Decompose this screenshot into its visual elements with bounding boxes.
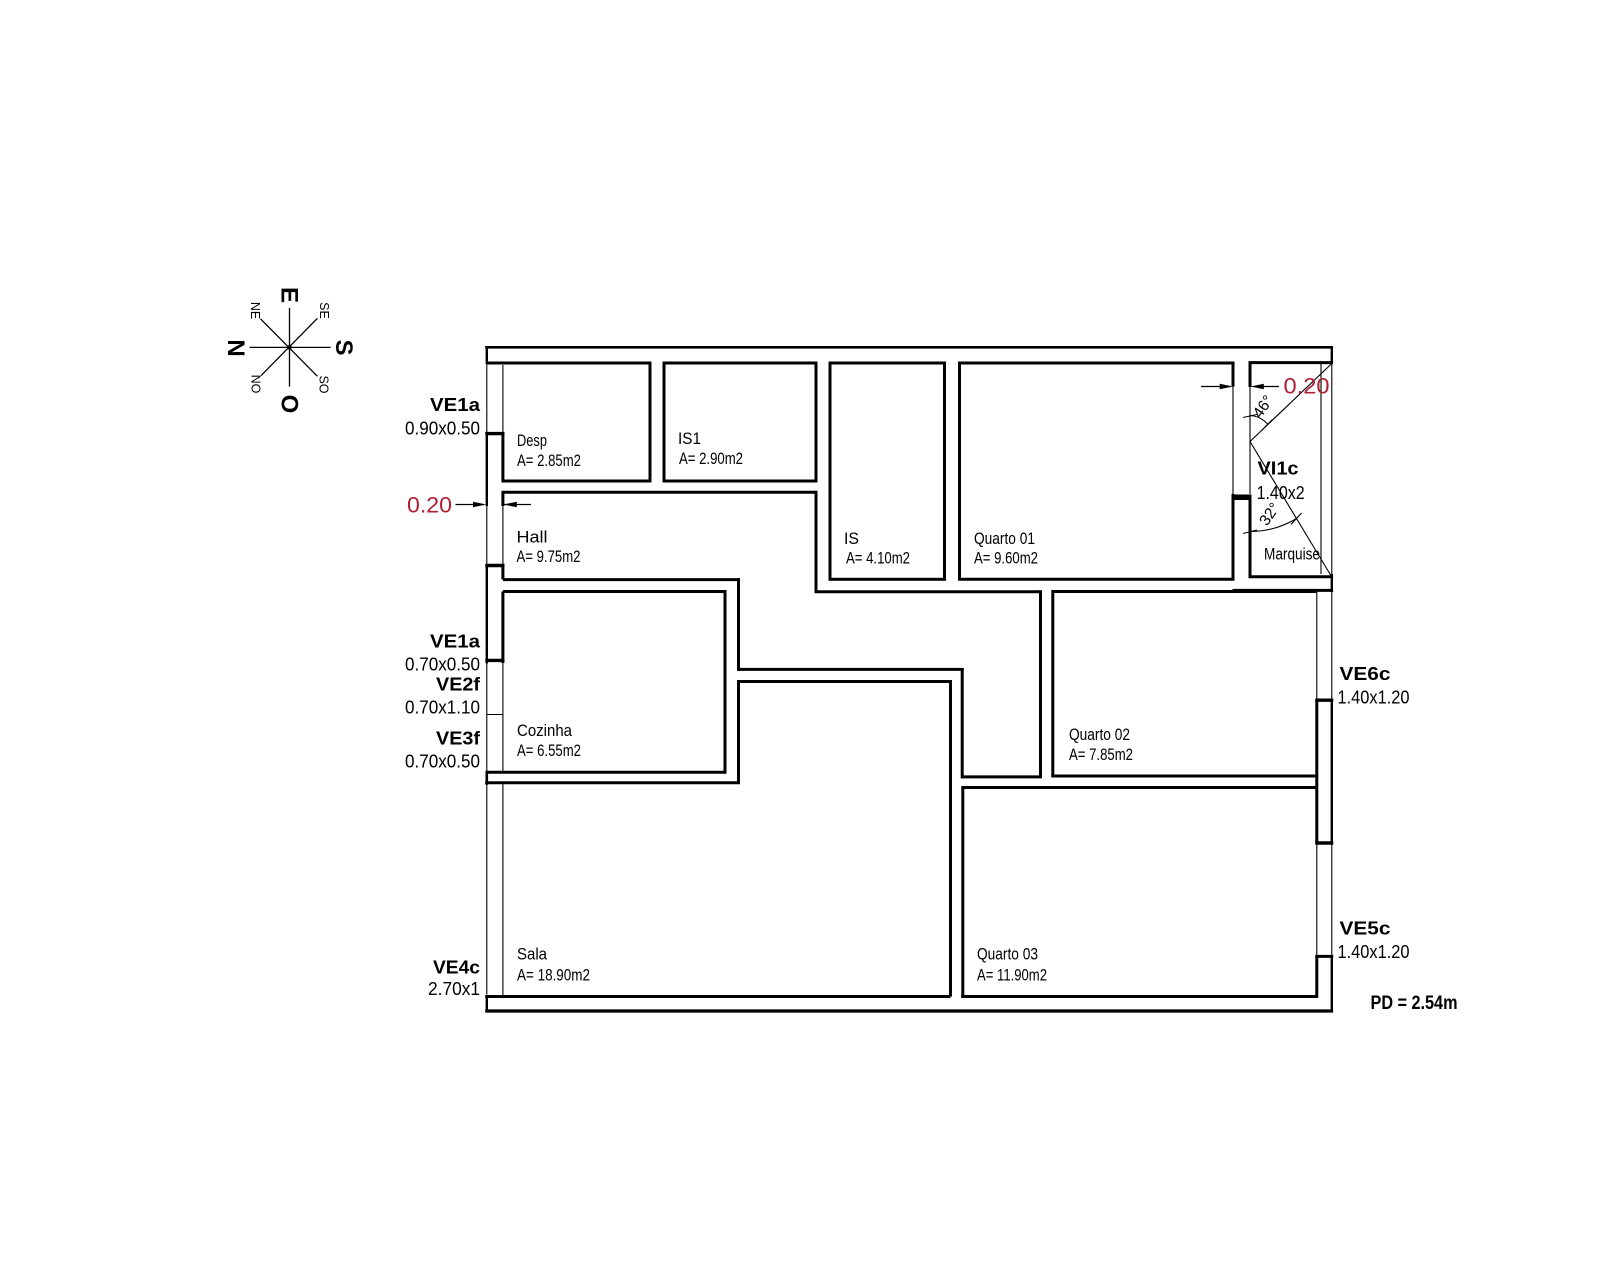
svg-text:Cozinha: Cozinha [517, 722, 573, 740]
svg-text:VE5c: VE5c [1340, 918, 1391, 939]
svg-text:O: O [276, 395, 303, 414]
svg-text:0.70x0.50: 0.70x0.50 [405, 655, 480, 675]
svg-text:A= 9.75m2: A= 9.75m2 [517, 548, 581, 566]
svg-text:IS1: IS1 [678, 430, 701, 448]
svg-text:1.40x1.20: 1.40x1.20 [1338, 688, 1410, 708]
svg-text:E: E [276, 287, 303, 303]
svg-text:N: N [222, 339, 249, 356]
svg-text:0.20: 0.20 [1284, 374, 1330, 399]
svg-text:PD = 2.54m: PD = 2.54m [1371, 992, 1458, 1014]
svg-text:NO: NO [249, 375, 263, 394]
svg-text:VE1a: VE1a [430, 631, 481, 652]
svg-text:A= 11.90m2: A= 11.90m2 [977, 967, 1047, 985]
svg-text:IS: IS [844, 530, 859, 548]
svg-text:VE1a: VE1a [430, 394, 481, 415]
svg-text:Sala: Sala [517, 946, 548, 964]
svg-text:VE2f: VE2f [436, 674, 481, 695]
svg-text:SE: SE [317, 302, 331, 319]
svg-text:VI1c: VI1c [1258, 458, 1299, 479]
svg-text:0.70x0.50: 0.70x0.50 [405, 752, 480, 772]
svg-text:NE: NE [248, 302, 262, 319]
svg-text:VE6c: VE6c [1340, 663, 1391, 684]
svg-text:A= 7.85m2: A= 7.85m2 [1069, 746, 1133, 764]
svg-text:0.20: 0.20 [407, 493, 452, 518]
svg-text:A= 6.55m2: A= 6.55m2 [517, 742, 581, 760]
svg-text:A= 9.60m2: A= 9.60m2 [974, 550, 1038, 568]
svg-text:Quarto 01: Quarto 01 [974, 530, 1035, 548]
svg-text:Marquise: Marquise [1264, 546, 1320, 564]
svg-text:2.70x1: 2.70x1 [428, 979, 480, 999]
svg-text:S: S [330, 339, 357, 355]
svg-text:Quarto 02: Quarto 02 [1069, 726, 1130, 744]
svg-text:SO: SO [317, 375, 331, 393]
svg-text:A= 2.90m2: A= 2.90m2 [679, 450, 743, 468]
svg-text:Desp: Desp [517, 432, 547, 450]
svg-text:0.90x0.50: 0.90x0.50 [405, 419, 480, 439]
svg-text:1.40x1.20: 1.40x1.20 [1338, 942, 1410, 962]
svg-text:Quarto 03: Quarto 03 [977, 946, 1038, 964]
svg-text:VE3f: VE3f [436, 728, 481, 749]
svg-text:Hall: Hall [517, 529, 548, 547]
svg-text:VE4c: VE4c [433, 957, 480, 978]
svg-text:1.40x2: 1.40x2 [1257, 483, 1305, 503]
svg-text:0.70x1.10: 0.70x1.10 [405, 698, 480, 718]
svg-text:A= 2.85m2: A= 2.85m2 [517, 452, 581, 470]
svg-text:A= 4.10m2: A= 4.10m2 [846, 550, 910, 568]
svg-text:A= 18.90m2: A= 18.90m2 [517, 967, 590, 985]
